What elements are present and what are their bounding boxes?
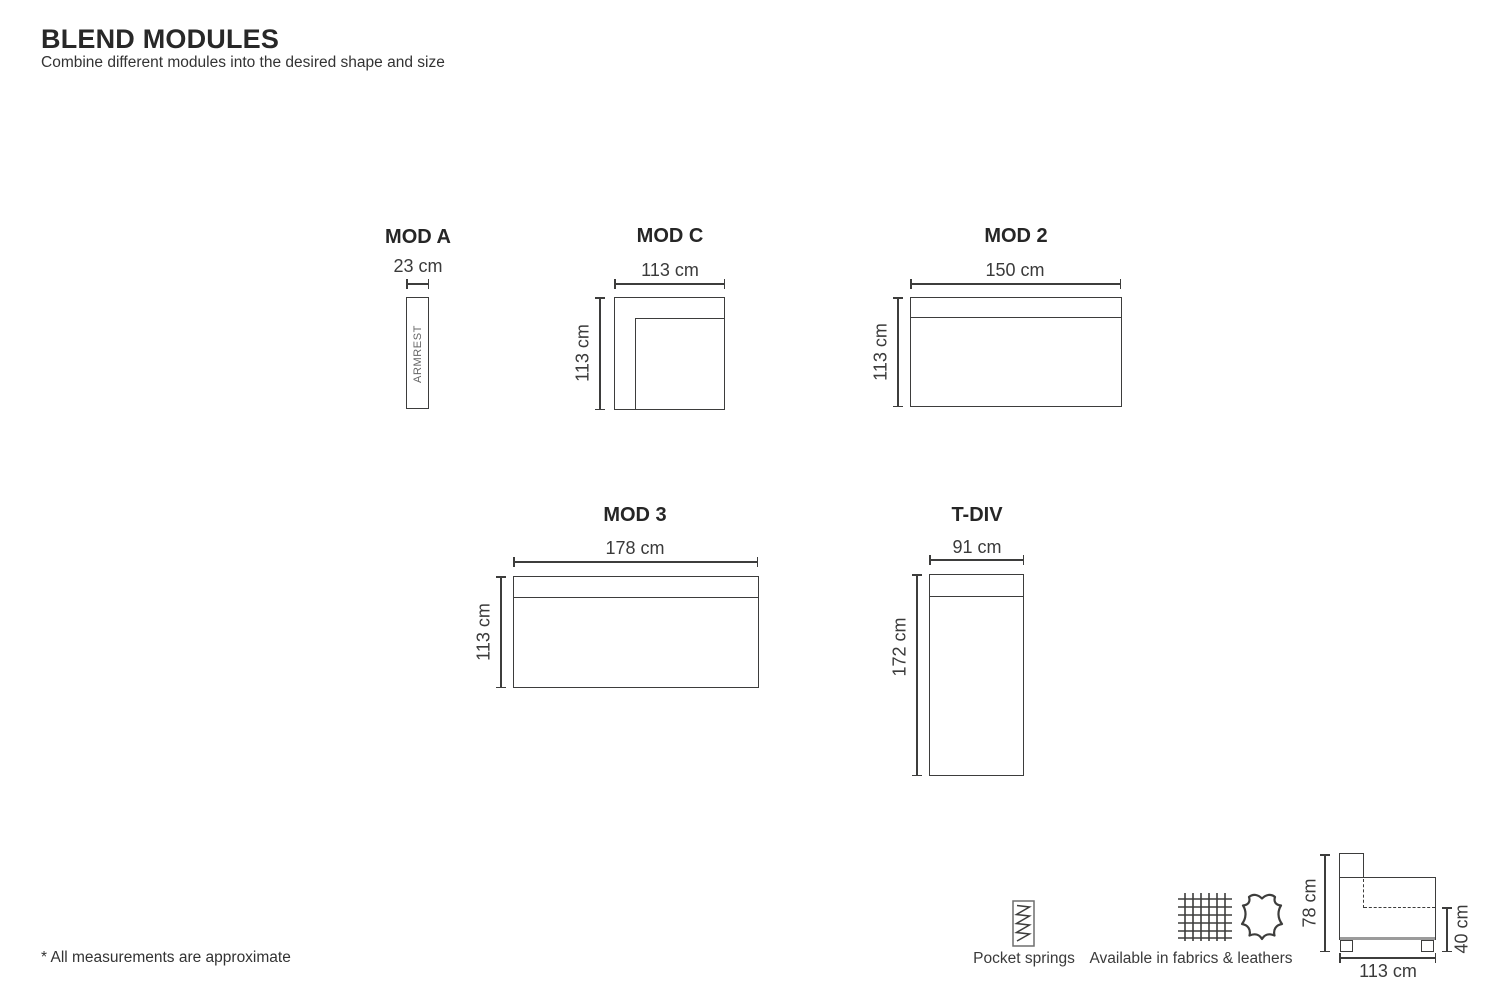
side-view-hidden-backrest-edge (1363, 879, 1364, 908)
mod-a-armrest-label: ARMREST (412, 325, 424, 383)
mod-2-title: MOD 2 (984, 225, 1047, 248)
mod-a-width-label: 23 cm (393, 256, 442, 277)
mod-3-width-dimension-line (513, 561, 758, 563)
page-subtitle: Combine different modules into the desir… (41, 54, 445, 72)
mod-c-title: MOD C (637, 225, 704, 248)
mod-2-width-dimension-line (910, 283, 1121, 285)
side-view-seat-height-dimension-line (1446, 907, 1448, 952)
mod-c-width-dimension-line (614, 283, 725, 285)
mod-2-height-dimension-line (897, 297, 899, 407)
side-view-total-height-dimension-line (1324, 854, 1326, 952)
mod-3-backrest-line (514, 597, 758, 598)
blend-modules-spec-sheet: BLEND MODULES Combine different modules … (0, 0, 1501, 1001)
mod-c-seat-line (635, 318, 725, 410)
leather-icon (1239, 892, 1285, 944)
mod-c-outline (614, 297, 725, 410)
pocket-springs-icon (1012, 900, 1035, 947)
mod-3-width-label: 178 cm (605, 538, 664, 559)
mod-a-outline: ARMREST (406, 297, 429, 409)
mod-3-title: MOD 3 (603, 504, 666, 527)
page-title: BLEND MODULES (41, 24, 279, 55)
side-view-backrest (1339, 853, 1364, 879)
fabric-icon (1177, 890, 1235, 944)
t-div-width-label: 91 cm (952, 537, 1001, 558)
side-view-left-foot (1340, 940, 1353, 952)
t-div-height-dimension-line (916, 574, 918, 776)
measurements-footnote: * All measurements are approximate (41, 949, 291, 967)
side-view-depth-label: 113 cm (1359, 961, 1417, 982)
mod-2-width-label: 150 cm (985, 260, 1044, 281)
materials-caption: Available in fabrics & leathers (1089, 950, 1292, 968)
mod-3-height-label: 113 cm (474, 603, 495, 661)
mod-a-title: MOD A (385, 226, 451, 249)
mod-c-width-label: 113 cm (641, 260, 699, 281)
mod-c-height-dimension-line (599, 297, 601, 410)
mod-3-height-dimension-line (500, 576, 502, 688)
mod-2-height-label: 113 cm (871, 323, 892, 381)
mod-2-backrest-line (911, 317, 1121, 318)
side-view-seat-level-line (1364, 907, 1435, 908)
t-div-title: T-DIV (951, 504, 1002, 527)
t-div-outline (929, 574, 1024, 776)
t-div-width-dimension-line (929, 559, 1024, 561)
side-view-right-foot (1421, 940, 1434, 952)
side-view-depth-dimension-line (1339, 957, 1436, 959)
side-view-seat-height-label: 40 cm (1452, 904, 1473, 953)
mod-a-width-dimension-line (406, 283, 429, 285)
t-div-height-label: 172 cm (890, 617, 911, 676)
t-div-backrest-line (930, 596, 1023, 597)
mod-c-height-label: 113 cm (573, 324, 594, 382)
pocket-springs-caption: Pocket springs (973, 950, 1075, 968)
side-view-body (1339, 877, 1436, 940)
side-view-total-height-label: 78 cm (1300, 878, 1321, 927)
mod-2-outline (910, 297, 1122, 407)
mod-3-outline (513, 576, 759, 688)
